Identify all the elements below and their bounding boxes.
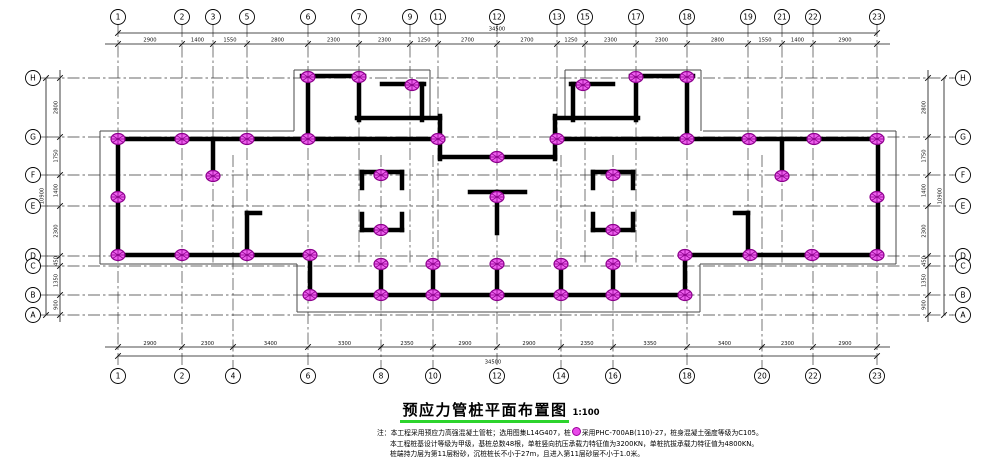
axis-bubble-label: 16 (608, 372, 618, 381)
axis-bubble-label: 7 (357, 13, 362, 22)
axis-bubble-label: 22 (808, 13, 818, 22)
axis-bubble-top-22: 22 (806, 10, 821, 25)
dim-label: 2300 (781, 341, 794, 347)
axis-bubble-top-17: 17 (629, 10, 644, 25)
axis-bubble-left-A: A (26, 308, 41, 323)
axis-bubble-right-A: A (956, 308, 971, 323)
dim-label: 3300 (338, 341, 351, 347)
pile-marker (805, 250, 819, 261)
dim-label: 900 (54, 300, 60, 310)
axis-bubble-label: G (960, 133, 966, 142)
pile-marker (374, 225, 388, 236)
note-line-1-prefix: 注：本工程采用预应力高强混凝土管桩；选用图集L14G407，桩 (377, 429, 571, 437)
axis-bubble-label: 23 (872, 13, 882, 22)
pile-marker (807, 134, 821, 145)
axis-bubble-top-13: 13 (550, 10, 565, 25)
pile-marker (431, 134, 445, 145)
axis-bubble-top-7: 7 (352, 10, 367, 25)
axis-bubble-left-F: F (26, 168, 41, 183)
axis-bubble-right-B: B (956, 288, 971, 303)
axis-bubble-right-H: H (956, 71, 971, 86)
dim-label: 1400 (791, 38, 804, 44)
pile-marker (240, 250, 254, 261)
axis-bubble-right-E: E (956, 199, 971, 214)
axis-bubble-label: 2 (180, 13, 185, 22)
pile-marker (175, 250, 189, 261)
dim-label: 2350 (400, 341, 413, 347)
note-line-1: 注：本工程采用预应力高强混凝土管桩；选用图集L14G407，桩采用PHC-700… (377, 427, 707, 439)
axis-bubble-label: 18 (682, 13, 692, 22)
axis-bubble-label: A (30, 311, 36, 320)
axis-bubble-label: B (30, 291, 35, 300)
axis-bubble-label: 11 (433, 13, 443, 22)
pile-marker (550, 134, 564, 145)
axis-bubble-left-E: E (26, 199, 41, 214)
dim-label: 1250 (417, 38, 430, 44)
pile-marker (490, 152, 504, 163)
pile-marker (606, 290, 620, 301)
dim-label: 2300 (604, 38, 617, 44)
axis-bubble-label: 21 (777, 13, 787, 22)
axis-bubble-label: 14 (556, 372, 566, 381)
pile-marker (303, 250, 317, 261)
dim-label: 2900 (143, 341, 156, 347)
dim-label: 2900 (838, 341, 851, 347)
pile-marker (629, 72, 643, 83)
pile-marker (606, 170, 620, 181)
pile-marker (606, 225, 620, 236)
axis-bubble-bottom-1: 1 (111, 369, 126, 384)
axis-bubble-label: 12 (492, 13, 502, 22)
pile-marker (490, 290, 504, 301)
axis-bubble-label: G (30, 133, 36, 142)
axis-bubble-bottom-2: 2 (175, 369, 190, 384)
dim-label: 2300 (201, 341, 214, 347)
drawing-title: 预应力管桩平面布置图 (400, 401, 569, 423)
dim-label: 3350 (643, 341, 656, 347)
axis-bubble-label: 6 (306, 13, 311, 22)
note-line-3: 桩端持力层为第11层粉砂，沉桩桩长不小于27m，且进入第11层砂层不小于1.0米… (377, 449, 707, 460)
pile-marker (405, 80, 419, 91)
axis-bubble-bottom-4: 4 (226, 369, 241, 384)
axis-bubble-bottom-22: 22 (806, 369, 821, 384)
axis-bubble-label: E (31, 202, 36, 211)
axis-bubble-bottom-12: 12 (490, 369, 505, 384)
pile-marker (870, 134, 884, 145)
dim-label: 2300 (54, 224, 60, 237)
pile-marker (678, 250, 692, 261)
dim-total-left: 10900 (40, 188, 46, 205)
dim-label: 2800 (922, 101, 928, 114)
pile-marker (240, 134, 254, 145)
pile-marker (426, 259, 440, 270)
dim-label: 2300 (655, 38, 668, 44)
axis-bubble-left-G: G (26, 130, 41, 145)
pile-marker (743, 250, 757, 261)
dim-label: 2700 (520, 38, 533, 44)
axis-bubble-label: 1 (116, 13, 121, 22)
drawing-scale: 1:100 (572, 408, 599, 418)
dim-label: 2800 (711, 38, 724, 44)
pile-marker (111, 250, 125, 261)
pile-marker (554, 290, 568, 301)
dim-label: 2900 (458, 341, 471, 347)
pile-marker (206, 171, 220, 182)
dim-label: 2800 (54, 101, 60, 114)
axis-bubble-label: 15 (580, 13, 590, 22)
axis-bubble-label: 23 (872, 372, 882, 381)
drawing-sheet: 2900140015502800230023001250270027001250… (0, 0, 1000, 472)
axis-bubble-label: 9 (408, 13, 413, 22)
axis-bubble-label: F (961, 171, 965, 180)
axis-bubble-bottom-8: 8 (374, 369, 389, 384)
axis-bubble-bottom-23: 23 (870, 369, 885, 384)
dim-label: 2300 (327, 38, 340, 44)
axis-bubble-label: 18 (682, 372, 692, 381)
axis-bubble-top-18: 18 (680, 10, 695, 25)
pile-marker (576, 80, 590, 91)
pile-marker (775, 171, 789, 182)
axis-bubble-label: 12 (492, 372, 502, 381)
axis-bubble-label: 2 (180, 372, 185, 381)
axis-bubble-right-G: G (956, 130, 971, 145)
title-block: 预应力管桩平面布置图1:100 (0, 399, 1000, 420)
axis-bubble-bottom-20: 20 (755, 369, 770, 384)
pile-marker (111, 134, 125, 145)
axis-bubble-label: B (960, 291, 965, 300)
axis-bubble-label: 13 (552, 13, 562, 22)
axis-bubble-top-15: 15 (578, 10, 593, 25)
axis-bubble-left-B: B (26, 288, 41, 303)
axis-bubble-label: C (960, 262, 965, 271)
pile-marker (301, 134, 315, 145)
axis-bubble-bottom-18: 18 (680, 369, 695, 384)
pile-marker (374, 290, 388, 301)
pile-marker (678, 290, 692, 301)
axis-bubble-label: E (961, 202, 966, 211)
dim-label: 2300 (378, 38, 391, 44)
axis-bubble-label: 17 (631, 13, 641, 22)
axis-bubble-top-9: 9 (403, 10, 418, 25)
pile-legend-icon (572, 427, 581, 436)
pile-marker (175, 134, 189, 145)
axis-bubble-label: 22 (808, 372, 818, 381)
pile-marker (870, 192, 884, 203)
axis-bubble-top-23: 23 (870, 10, 885, 25)
dim-label: 1550 (758, 38, 771, 44)
axis-bubble-label: H (30, 74, 36, 83)
pile-marker (742, 134, 756, 145)
pile-marker (301, 72, 315, 83)
axis-bubble-label: F (31, 171, 35, 180)
dim-label: 1400 (922, 184, 928, 197)
dim-label: 1250 (564, 38, 577, 44)
dim-label: 1400 (54, 184, 60, 197)
note-line-2: 本工程桩基设计等级为甲级，基桩总数48根，单桩竖向抗压承载力特征值为3200KN… (377, 439, 707, 450)
pile-marker (374, 170, 388, 181)
axis-bubble-top-1: 1 (111, 10, 126, 25)
axis-bubble-label: 8 (379, 372, 384, 381)
pile-marker (352, 72, 366, 83)
axis-bubble-label: C (30, 262, 35, 271)
dim-total-bottom: 34500 (485, 360, 502, 366)
dim-label: 1750 (922, 149, 928, 162)
axis-bubble-label: A (960, 311, 966, 320)
dim-label: 1350 (54, 274, 60, 287)
axis-bubble-bottom-10: 10 (426, 369, 441, 384)
pile-marker (490, 259, 504, 270)
axis-bubble-label: 4 (231, 372, 236, 381)
axis-bubble-bottom-16: 16 (606, 369, 621, 384)
axis-bubble-label: 19 (743, 13, 753, 22)
axis-bubble-label: 1 (116, 372, 121, 381)
dim-total-right: 10900 (938, 188, 944, 205)
pile-marker (680, 72, 694, 83)
dim-label: 2900 (838, 38, 851, 44)
pile-marker (870, 250, 884, 261)
dim-label: 2350 (580, 341, 593, 347)
dim-total-top: 34500 (489, 27, 506, 33)
pile-marker (606, 259, 620, 270)
pile-marker (490, 192, 504, 203)
pile-marker (426, 290, 440, 301)
axis-bubble-right-C: C (956, 259, 971, 274)
dim-label: 450 (922, 256, 928, 266)
dim-label: 1750 (54, 149, 60, 162)
axis-bubble-top-6: 6 (301, 10, 316, 25)
axis-bubble-label: 6 (306, 372, 311, 381)
axis-bubble-right-F: F (956, 168, 971, 183)
axis-bubble-top-11: 11 (431, 10, 446, 25)
dim-label: 2300 (922, 224, 928, 237)
dim-label: 2800 (271, 38, 284, 44)
note-line-1-suffix: 采用PHC-700AB(110)-27，桩身混凝土强度等级为C105。 (582, 429, 763, 437)
pile-marker (303, 290, 317, 301)
axis-bubble-top-12: 12 (490, 10, 505, 25)
axis-bubble-bottom-6: 6 (301, 369, 316, 384)
axis-bubble-bottom-14: 14 (554, 369, 569, 384)
axis-bubble-label: 10 (428, 372, 438, 381)
pile-plan-canvas: 2900140015502800230023001250270027001250… (0, 0, 1000, 397)
pile-marker (374, 259, 388, 270)
axis-bubble-top-19: 19 (741, 10, 756, 25)
axis-bubble-label: 20 (757, 372, 767, 381)
pile-marker (111, 192, 125, 203)
axis-bubble-top-21: 21 (775, 10, 790, 25)
axis-bubble-top-2: 2 (175, 10, 190, 25)
dim-label: 450 (54, 256, 60, 266)
dim-label: 1400 (191, 38, 204, 44)
dim-label: 2900 (522, 341, 535, 347)
pile-marker (680, 134, 694, 145)
dim-label: 3400 (264, 341, 277, 347)
axis-bubble-label: 5 (245, 13, 250, 22)
axis-bubble-top-5: 5 (240, 10, 255, 25)
dim-label: 2900 (143, 38, 156, 44)
axis-bubble-label: H (960, 74, 966, 83)
axis-bubble-left-H: H (26, 71, 41, 86)
axis-bubble-left-C: C (26, 259, 41, 274)
notes-block: 注：本工程采用预应力高强混凝土管桩；选用图集L14G407，桩采用PHC-700… (377, 427, 707, 460)
axis-bubble-label: 3 (211, 13, 216, 22)
dim-label: 1350 (922, 274, 928, 287)
dim-label: 3400 (718, 341, 731, 347)
dim-label: 900 (922, 300, 928, 310)
pile-marker (554, 259, 568, 270)
dim-label: 1550 (223, 38, 236, 44)
dim-label: 2700 (461, 38, 474, 44)
axis-bubble-top-3: 3 (206, 10, 221, 25)
